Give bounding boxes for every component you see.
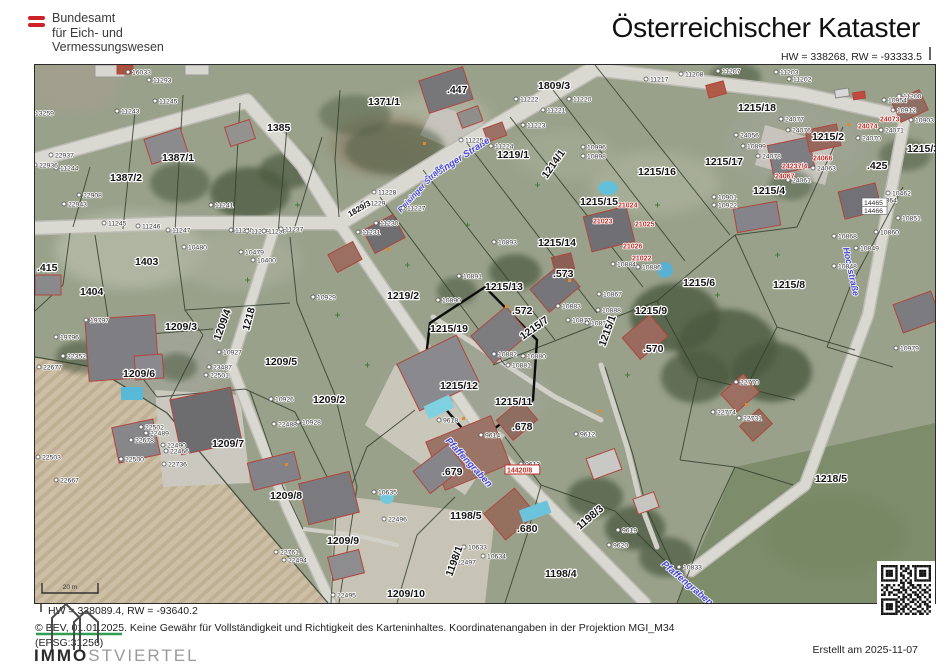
flag-bar-bottom bbox=[28, 23, 45, 27]
qr-module bbox=[902, 575, 904, 577]
qr-module bbox=[888, 594, 890, 596]
survey-point-marker bbox=[372, 490, 376, 494]
logo-text-light: STVIERTEL bbox=[88, 646, 198, 665]
qr-module bbox=[886, 613, 888, 615]
survey-point-marker bbox=[891, 108, 895, 112]
qr-module bbox=[905, 567, 907, 569]
qr-module bbox=[907, 613, 909, 615]
qr-module bbox=[929, 565, 931, 567]
parcel-label: 1215/15 bbox=[580, 196, 618, 208]
qr-module bbox=[881, 610, 883, 612]
agency-line-2: für Eich- und bbox=[52, 26, 164, 41]
qr-module bbox=[891, 575, 893, 577]
qr-module bbox=[914, 613, 916, 615]
survey-point-label: 22770 bbox=[740, 380, 759, 387]
survey-point-label: 11230 bbox=[380, 221, 399, 228]
qr-module bbox=[898, 584, 900, 586]
qr-module bbox=[914, 572, 916, 574]
qr-module bbox=[917, 565, 919, 567]
qr-module bbox=[919, 570, 921, 572]
survey-point-marker bbox=[356, 230, 360, 234]
survey-point-marker bbox=[756, 154, 760, 158]
survey-point-marker bbox=[716, 69, 720, 73]
survey-point-marker bbox=[35, 163, 37, 167]
cadastral-map: 20 m Reisinger StraßeReisinger StraßePfa… bbox=[34, 64, 936, 604]
survey-point-marker bbox=[84, 318, 88, 322]
survey-point-marker bbox=[894, 346, 898, 350]
red-label: 24074 bbox=[858, 124, 878, 131]
survey-point-label: 10901 bbox=[718, 195, 737, 202]
qr-module bbox=[891, 598, 893, 600]
qr-module bbox=[910, 589, 912, 591]
qr-module bbox=[881, 603, 883, 605]
survey-point-marker bbox=[209, 203, 213, 207]
parcel-label: 1215/9 bbox=[635, 305, 667, 317]
survey-point-label: 10851 bbox=[902, 216, 921, 223]
survey-point-marker bbox=[372, 190, 376, 194]
survey-point-marker bbox=[54, 335, 58, 339]
parcel-label: 1215/17 bbox=[705, 156, 743, 168]
survey-point-marker bbox=[147, 78, 151, 82]
qr-module bbox=[888, 565, 890, 567]
qr-module bbox=[929, 575, 931, 577]
parcel-label: 1215/18 bbox=[738, 102, 776, 114]
qr-module bbox=[921, 575, 923, 577]
qr-module bbox=[881, 598, 883, 600]
survey-point-marker bbox=[229, 228, 233, 232]
parcel-label: 1209/8 bbox=[270, 490, 302, 502]
survey-point-marker bbox=[401, 206, 405, 210]
parcel-label: 1215/3 bbox=[907, 143, 935, 155]
survey-point-marker bbox=[596, 308, 600, 312]
survey-point-label: 10479 bbox=[245, 250, 264, 257]
survey-point-marker bbox=[77, 193, 81, 197]
qr-module bbox=[921, 608, 923, 610]
qr-module bbox=[921, 613, 923, 615]
qr-module bbox=[914, 570, 916, 572]
parcel-label: 1215/12 bbox=[440, 380, 478, 392]
survey-point-label: 10888 bbox=[602, 308, 621, 315]
survey-point-label: 10868 bbox=[838, 234, 857, 241]
survey-point-marker bbox=[611, 262, 615, 266]
survey-point-marker bbox=[574, 432, 578, 436]
survey-point-label: 10886 bbox=[642, 265, 661, 272]
parcel-label: 1387/1 bbox=[162, 152, 194, 164]
qr-module bbox=[888, 572, 890, 574]
survey-point-label: 22774 bbox=[717, 410, 736, 417]
survey-point-label: 10929 bbox=[317, 295, 336, 302]
parcel-label: 1209/3 bbox=[165, 321, 197, 333]
survey-point-label: 11202 bbox=[793, 77, 812, 84]
survey-point-marker bbox=[457, 274, 461, 278]
qr-module bbox=[921, 579, 923, 581]
qr-module bbox=[881, 589, 883, 591]
survey-point-marker bbox=[874, 230, 878, 234]
survey-point-label: 10903 bbox=[915, 118, 934, 125]
qr-module bbox=[893, 579, 895, 581]
qr-module bbox=[905, 591, 907, 593]
qr-module bbox=[912, 601, 914, 603]
survey-point-marker bbox=[144, 431, 148, 435]
qr-module bbox=[907, 572, 909, 574]
survey-point-marker bbox=[566, 318, 570, 322]
qr-module bbox=[881, 570, 883, 572]
survey-point-marker bbox=[62, 202, 66, 206]
survey-point-marker bbox=[741, 144, 745, 148]
qr-module bbox=[881, 577, 883, 579]
survey-point-label: 24070 bbox=[862, 136, 881, 143]
qr-module bbox=[883, 613, 885, 615]
qr-module bbox=[926, 605, 928, 607]
survey-point-label: 22494 bbox=[288, 558, 307, 565]
parcel-label: 1385 bbox=[267, 122, 291, 134]
qr-module bbox=[917, 584, 919, 586]
survey-point-marker bbox=[597, 292, 601, 296]
survey-point-marker bbox=[832, 234, 836, 238]
qr-module bbox=[910, 584, 912, 586]
qr-module bbox=[902, 565, 904, 567]
survey-point-marker bbox=[832, 264, 836, 268]
qr-module bbox=[886, 579, 888, 581]
survey-point-marker bbox=[677, 565, 681, 569]
qr-module bbox=[900, 603, 902, 605]
survey-point-marker bbox=[882, 98, 886, 102]
qr-module bbox=[919, 591, 921, 593]
survey-point-label: 10849 bbox=[860, 246, 879, 253]
parcel-label: 1198/5 bbox=[450, 510, 482, 522]
qr-module bbox=[893, 613, 895, 615]
survey-point-label: 10881 bbox=[512, 363, 531, 370]
survey-point-label: 22736 bbox=[168, 462, 187, 469]
qr-module bbox=[900, 608, 902, 610]
qr-module bbox=[886, 586, 888, 588]
qr-module bbox=[902, 608, 904, 610]
qr-module bbox=[907, 594, 909, 596]
parcel-label: 1209/6 bbox=[123, 368, 155, 380]
map-canvas: 20 m Reisinger StraßeReisinger StraßePfa… bbox=[35, 65, 935, 603]
qr-module bbox=[910, 572, 912, 574]
qr-module bbox=[881, 579, 883, 581]
qr-module bbox=[924, 575, 926, 577]
survey-point-label: 11207 bbox=[722, 69, 741, 76]
parcel-label: 1219/1 bbox=[497, 149, 529, 161]
qr-module bbox=[912, 591, 914, 593]
qr-module bbox=[902, 577, 904, 579]
qr-module bbox=[883, 579, 885, 581]
qr-module bbox=[926, 579, 928, 581]
created-date: Erstellt am 2025-11-07 bbox=[813, 644, 918, 656]
survey-point-marker bbox=[567, 97, 571, 101]
survey-point-label: 10633 bbox=[468, 545, 487, 552]
qr-module bbox=[886, 608, 888, 610]
red-label: 21024 bbox=[618, 203, 638, 210]
qr-module bbox=[907, 586, 909, 588]
survey-point-label: 24071 bbox=[885, 128, 904, 135]
survey-point-label: 11241 bbox=[215, 203, 234, 210]
survey-point-marker bbox=[54, 478, 58, 482]
qr-module bbox=[910, 570, 912, 572]
parcel-label: .573 bbox=[553, 268, 574, 280]
immostviertel-logo: IMMOSTVIERTEL bbox=[30, 598, 190, 668]
qr-module bbox=[888, 605, 890, 607]
qr-module bbox=[898, 605, 900, 607]
qr-module bbox=[881, 608, 883, 610]
parcel-label: 1387/2 bbox=[110, 172, 142, 184]
qr-module bbox=[905, 596, 907, 598]
survey-point-marker bbox=[492, 240, 496, 244]
survey-point-label: 11239 bbox=[251, 229, 270, 236]
survey-point-label: 22908 bbox=[83, 193, 102, 200]
qr-module bbox=[891, 613, 893, 615]
qr-module bbox=[912, 613, 914, 615]
qr-module bbox=[895, 598, 897, 600]
qr-module bbox=[900, 572, 902, 574]
bev-flag-icon bbox=[28, 16, 45, 27]
qr-module bbox=[914, 591, 916, 593]
qr-module bbox=[921, 589, 923, 591]
survey-point-marker bbox=[274, 550, 278, 554]
survey-point-label: 24063 bbox=[817, 166, 836, 173]
qr-module bbox=[893, 594, 895, 596]
survey-point-marker bbox=[437, 418, 441, 422]
survey-point-marker bbox=[382, 517, 386, 521]
qr-module bbox=[905, 579, 907, 581]
qr-module bbox=[919, 603, 921, 605]
qr-module bbox=[910, 594, 912, 596]
parcel-label: 1215/13 bbox=[485, 281, 523, 293]
qr-module bbox=[891, 586, 893, 588]
qr-module bbox=[910, 605, 912, 607]
qr-module bbox=[900, 598, 902, 600]
qr-module bbox=[921, 572, 923, 574]
qr-module bbox=[881, 565, 883, 567]
qr-module bbox=[886, 572, 888, 574]
survey-point-marker bbox=[811, 166, 815, 170]
survey-point-label: 11227 bbox=[407, 206, 426, 213]
qr-module bbox=[919, 572, 921, 574]
parcel-label: 1218/5 bbox=[815, 473, 847, 485]
survey-point-label: 10880 bbox=[527, 354, 546, 361]
qr-module bbox=[921, 594, 923, 596]
survey-point-label: 11220 bbox=[573, 97, 592, 104]
survey-point-label: 11238 bbox=[268, 229, 287, 236]
survey-point-marker bbox=[481, 554, 485, 558]
survey-point-label: 11246 bbox=[142, 224, 161, 231]
parcel-label: 1215/6 bbox=[683, 277, 715, 289]
survey-point-label: 11244 bbox=[60, 166, 79, 173]
qr-module bbox=[895, 589, 897, 591]
qr-module bbox=[924, 565, 926, 567]
survey-point-marker bbox=[506, 363, 510, 367]
qr-module bbox=[929, 605, 931, 607]
qr-module bbox=[902, 605, 904, 607]
qr-module bbox=[926, 586, 928, 588]
survey-point-label: 10882 bbox=[498, 352, 517, 359]
qr-module bbox=[895, 577, 897, 579]
parcel-label: 1809/3 bbox=[538, 80, 570, 92]
survey-point-marker bbox=[436, 298, 440, 302]
red-label: 21025 bbox=[635, 222, 655, 229]
survey-point-marker bbox=[774, 70, 778, 74]
survey-point-marker bbox=[636, 265, 640, 269]
qr-module bbox=[929, 596, 931, 598]
qr-module bbox=[919, 610, 921, 612]
qr-module bbox=[895, 594, 897, 596]
qr-module bbox=[924, 570, 926, 572]
parcel-label: 1209/7 bbox=[212, 438, 244, 450]
qr-module bbox=[895, 601, 897, 603]
survey-point-label: 10898 bbox=[587, 154, 606, 161]
qr-module bbox=[902, 596, 904, 598]
qr-module bbox=[883, 565, 885, 567]
qr-module bbox=[919, 605, 921, 607]
qr-code bbox=[877, 561, 935, 619]
qr-module bbox=[914, 598, 916, 600]
parcel-label: 1215/19 bbox=[430, 323, 468, 335]
red-label: 24073 bbox=[880, 117, 900, 124]
qr-module bbox=[902, 601, 904, 603]
qr-module bbox=[924, 591, 926, 593]
qr-module bbox=[883, 586, 885, 588]
survey-point-marker bbox=[182, 245, 186, 249]
qr-module bbox=[881, 567, 883, 569]
survey-point-marker bbox=[119, 457, 123, 461]
qr-module bbox=[924, 584, 926, 586]
survey-point-label: 11217 bbox=[650, 77, 669, 84]
survey-point-marker bbox=[886, 191, 890, 195]
survey-point-label: 22937 bbox=[55, 153, 74, 160]
qr-module bbox=[912, 586, 914, 588]
agency-name: Bundesamt für Eich- und Vermessungswesen bbox=[52, 11, 164, 55]
qr-module bbox=[929, 567, 931, 569]
survey-point-label: 10928 bbox=[302, 420, 321, 427]
survey-point-label: 9620 bbox=[613, 543, 628, 550]
survey-point-label: 22503 bbox=[42, 455, 61, 462]
survey-point-marker bbox=[712, 203, 716, 207]
qr-module bbox=[907, 582, 909, 584]
parcel-label: .680 bbox=[517, 523, 538, 535]
survey-point-marker bbox=[251, 258, 255, 262]
qr-module bbox=[914, 567, 916, 569]
qr-module bbox=[886, 598, 888, 600]
qr-module bbox=[900, 591, 902, 593]
survey-point-label: 13259 bbox=[35, 111, 54, 118]
qr-module bbox=[924, 610, 926, 612]
qr-module bbox=[881, 584, 883, 586]
survey-point-label: 10922 bbox=[718, 203, 737, 210]
survey-point-marker bbox=[374, 221, 378, 225]
qr-module bbox=[898, 589, 900, 591]
survey-point-label: 10926 bbox=[275, 397, 294, 404]
qr-module bbox=[900, 582, 902, 584]
survey-point-marker bbox=[37, 365, 41, 369]
survey-point-marker bbox=[712, 195, 716, 199]
parcel-label: .572 bbox=[512, 305, 533, 317]
qr-module bbox=[917, 589, 919, 591]
qr-module bbox=[919, 596, 921, 598]
survey-point-marker bbox=[737, 416, 741, 420]
qr-module bbox=[883, 594, 885, 596]
survey-point-label: 11247 bbox=[172, 228, 191, 235]
survey-point-label: 24056 bbox=[740, 133, 759, 140]
qr-module bbox=[895, 579, 897, 581]
qr-module bbox=[900, 575, 902, 577]
parcel-label: 1404 bbox=[80, 286, 104, 298]
survey-point-marker bbox=[581, 154, 585, 158]
survey-point-label: 22936 bbox=[39, 163, 58, 170]
qr-module bbox=[891, 579, 893, 581]
parcel-label: 1209/10 bbox=[387, 588, 425, 600]
agency-line-1: Bundesamt bbox=[52, 11, 164, 26]
parcel-label: 1403 bbox=[135, 256, 159, 268]
survey-point-marker bbox=[492, 352, 496, 356]
survey-point-label: 10891 bbox=[463, 274, 482, 281]
qr-module bbox=[888, 613, 890, 615]
qr-module bbox=[891, 572, 893, 574]
parcel-label: 1215/8 bbox=[773, 279, 805, 291]
survey-point-marker bbox=[153, 99, 157, 103]
qr-module bbox=[886, 565, 888, 567]
survey-point-label: 11203 bbox=[780, 70, 799, 77]
survey-point-marker bbox=[489, 144, 493, 148]
survey-point-label: 9612 bbox=[580, 432, 595, 439]
qr-module bbox=[883, 591, 885, 593]
survey-point-marker bbox=[644, 77, 648, 81]
qr-module bbox=[891, 603, 893, 605]
survey-point-marker bbox=[102, 221, 106, 225]
survey-point-label: 10867 bbox=[603, 292, 622, 299]
qr-module bbox=[910, 582, 912, 584]
qr-module bbox=[924, 572, 926, 574]
qr-module bbox=[924, 601, 926, 603]
qr-module bbox=[895, 567, 897, 569]
qr-module bbox=[914, 608, 916, 610]
survey-point-marker bbox=[207, 365, 211, 369]
survey-point-label: 24076 bbox=[792, 128, 811, 135]
qr-module bbox=[919, 586, 921, 588]
survey-point-marker bbox=[856, 136, 860, 140]
qr-module bbox=[895, 565, 897, 567]
survey-point-label: 10884 bbox=[617, 262, 636, 269]
red-label: 24066 bbox=[813, 156, 833, 163]
qr-module bbox=[905, 613, 907, 615]
survey-point-marker bbox=[126, 70, 130, 74]
boxed-label: 14465 bbox=[864, 200, 883, 207]
survey-point-label: 24061 bbox=[792, 178, 811, 185]
survey-point-label: 9614 bbox=[485, 433, 500, 440]
survey-point-label: 22501 bbox=[210, 373, 229, 380]
survey-point-label: 11228 bbox=[378, 190, 397, 197]
qr-module bbox=[891, 605, 893, 607]
parcel-label: 1371/1 bbox=[368, 96, 400, 108]
survey-point-marker bbox=[581, 145, 585, 149]
qr-module bbox=[898, 601, 900, 603]
survey-point-marker bbox=[616, 528, 620, 532]
qr-module bbox=[881, 605, 883, 607]
qr-module bbox=[900, 613, 902, 615]
survey-point-label: 10635 bbox=[378, 490, 397, 497]
qr-module bbox=[893, 598, 895, 600]
survey-point-marker bbox=[296, 420, 300, 424]
survey-point-label: 11225 bbox=[465, 138, 484, 145]
qr-module bbox=[905, 603, 907, 605]
qr-module bbox=[924, 596, 926, 598]
survey-point-label: 10996 bbox=[587, 145, 606, 152]
survey-point-label: 22678 bbox=[135, 438, 154, 445]
parcel-label: 1215/2 bbox=[812, 131, 844, 143]
qr-module bbox=[926, 591, 928, 593]
qr-module bbox=[891, 570, 893, 572]
